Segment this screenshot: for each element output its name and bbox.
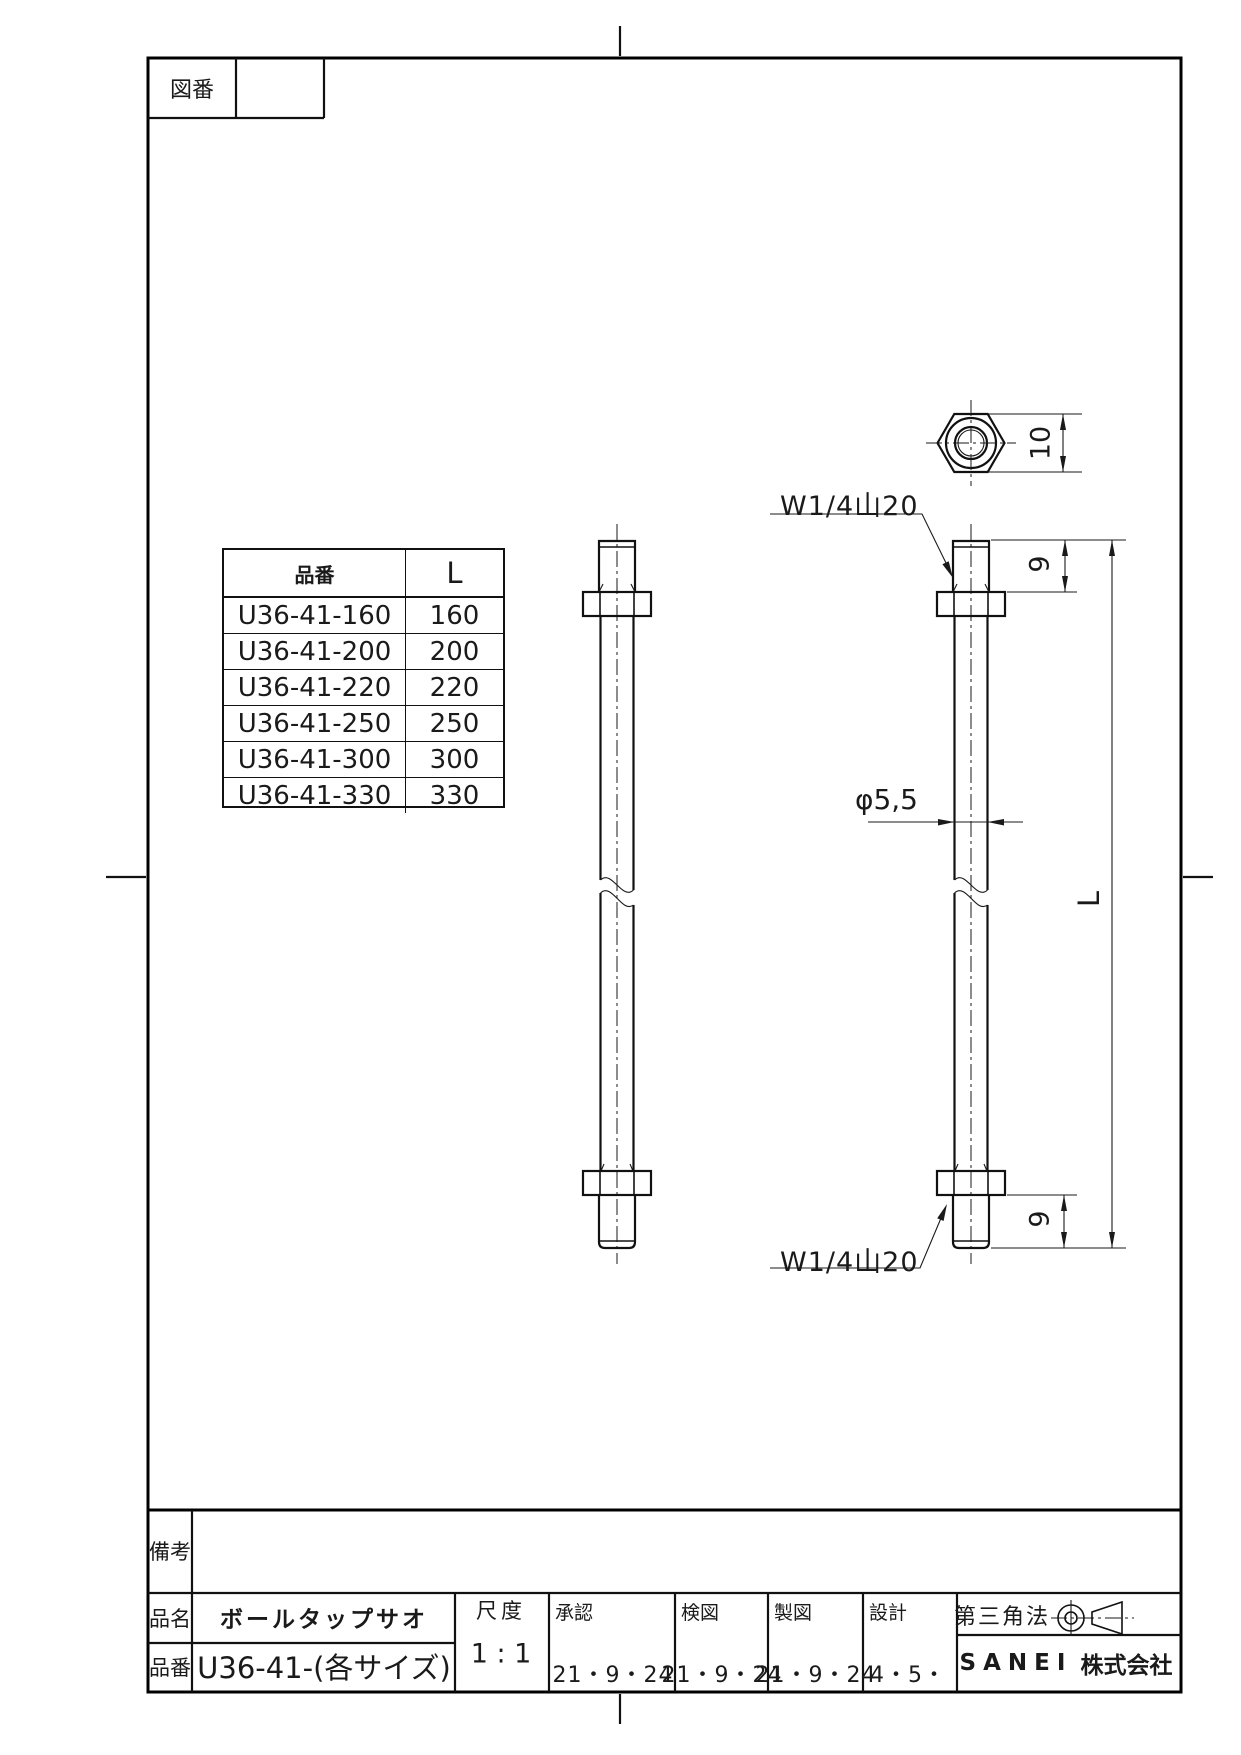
company-name-jp: 株式会社 <box>1080 1646 1172 1680</box>
table-cell-code: U36-41-300 <box>224 742 406 777</box>
design-date: 4・5・ <box>870 1657 946 1689</box>
third-angle-projection-icon <box>1051 1600 1134 1636</box>
remarks-label: 備考 <box>149 1536 191 1566</box>
table-cell-length: 200 <box>406 634 503 669</box>
scale-value: 1 : 1 <box>471 1639 532 1670</box>
table-row: U36-41-160 160 <box>224 598 503 633</box>
sheet-frame <box>106 26 1213 1724</box>
table-row: U36-41-330 330 <box>224 777 503 813</box>
table-row: U36-41-200 200 <box>224 633 503 669</box>
drawing-linework <box>0 0 1241 1755</box>
table-row: U36-41-300 300 <box>224 741 503 777</box>
drawing-number-label: 図番 <box>170 72 214 104</box>
scale-label: 尺度 <box>476 1595 526 1625</box>
rod-side-view-left <box>583 524 651 1264</box>
overall-length-dimension: L <box>1072 891 1106 907</box>
table-cell-code: U36-41-330 <box>224 778 406 813</box>
shaft-diameter-label: φ5,5 <box>855 783 918 816</box>
approval-label: 承認 <box>555 1598 593 1625</box>
size-table-header-code: 品番 <box>224 550 406 596</box>
rod-side-view-right <box>937 524 1005 1264</box>
dimension-lines <box>770 414 1126 1268</box>
part-number-value: U36-41-(各サイズ) <box>197 1645 451 1687</box>
table-cell-length: 160 <box>406 598 503 633</box>
thread-spec-label-bottom: W1/4山20 <box>780 1240 919 1279</box>
check-label: 検図 <box>681 1598 719 1625</box>
table-cell-code: U36-41-200 <box>224 634 406 669</box>
table-cell-length: 250 <box>406 706 503 741</box>
nut-width-dimension: 10 <box>1026 426 1057 460</box>
table-row: U36-41-250 250 <box>224 705 503 741</box>
nut-top-view <box>926 400 1016 486</box>
table-cell-length: 300 <box>406 742 503 777</box>
size-table-header-length: L <box>406 550 503 596</box>
thread-length-dimension-bottom: 9 <box>1025 1210 1056 1227</box>
part-number-label: 品番 <box>149 1652 191 1682</box>
table-cell-length: 330 <box>406 778 503 813</box>
draft-label: 製図 <box>774 1598 812 1625</box>
projection-method-label: 第三角法 <box>954 1599 1050 1631</box>
design-label: 設計 <box>869 1598 907 1625</box>
table-cell-length: 220 <box>406 670 503 705</box>
table-cell-code: U36-41-220 <box>224 670 406 705</box>
approval-date: 21・9・24 <box>553 1657 674 1689</box>
table-cell-code: U36-41-160 <box>224 598 406 633</box>
product-name-label: 品名 <box>149 1603 191 1633</box>
company-name-en: SANEI <box>960 1650 1073 1676</box>
draft-date: 21・9・24 <box>756 1657 877 1689</box>
product-name-value: ボールタップサオ <box>220 1600 428 1634</box>
drawing-sheet: 図番 品番 L U36-41-160 160 U36-41-200 200 U3… <box>0 0 1241 1755</box>
table-cell-code: U36-41-250 <box>224 706 406 741</box>
table-row: U36-41-220 220 <box>224 669 503 705</box>
thread-length-dimension-top: 9 <box>1025 555 1056 572</box>
company-logo: SANEI 株式会社 <box>960 1646 1173 1680</box>
thread-spec-label-top: W1/4山20 <box>780 484 919 523</box>
size-table-header: 品番 L <box>224 550 503 598</box>
size-table: 品番 L U36-41-160 160 U36-41-200 200 U36-4… <box>222 548 505 808</box>
